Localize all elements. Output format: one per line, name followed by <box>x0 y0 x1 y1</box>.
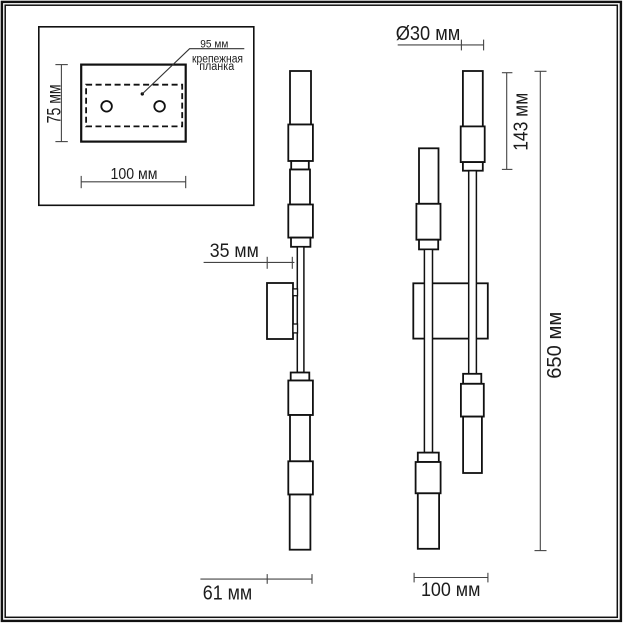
svg-text:Ø30 мм: Ø30 мм <box>396 23 461 45</box>
svg-text:100 мм: 100 мм <box>111 166 158 183</box>
svg-text:35 мм: 35 мм <box>210 240 259 262</box>
svg-text:61 мм: 61 мм <box>203 583 253 605</box>
svg-text:100 мм: 100 мм <box>421 579 481 601</box>
svg-text:95 мм: 95 мм <box>200 38 228 50</box>
svg-text:75 мм: 75 мм <box>45 84 66 123</box>
svg-text:143 мм: 143 мм <box>510 93 533 151</box>
svg-text:650 мм: 650 мм <box>543 312 566 379</box>
svg-text:планка: планка <box>199 61 235 73</box>
